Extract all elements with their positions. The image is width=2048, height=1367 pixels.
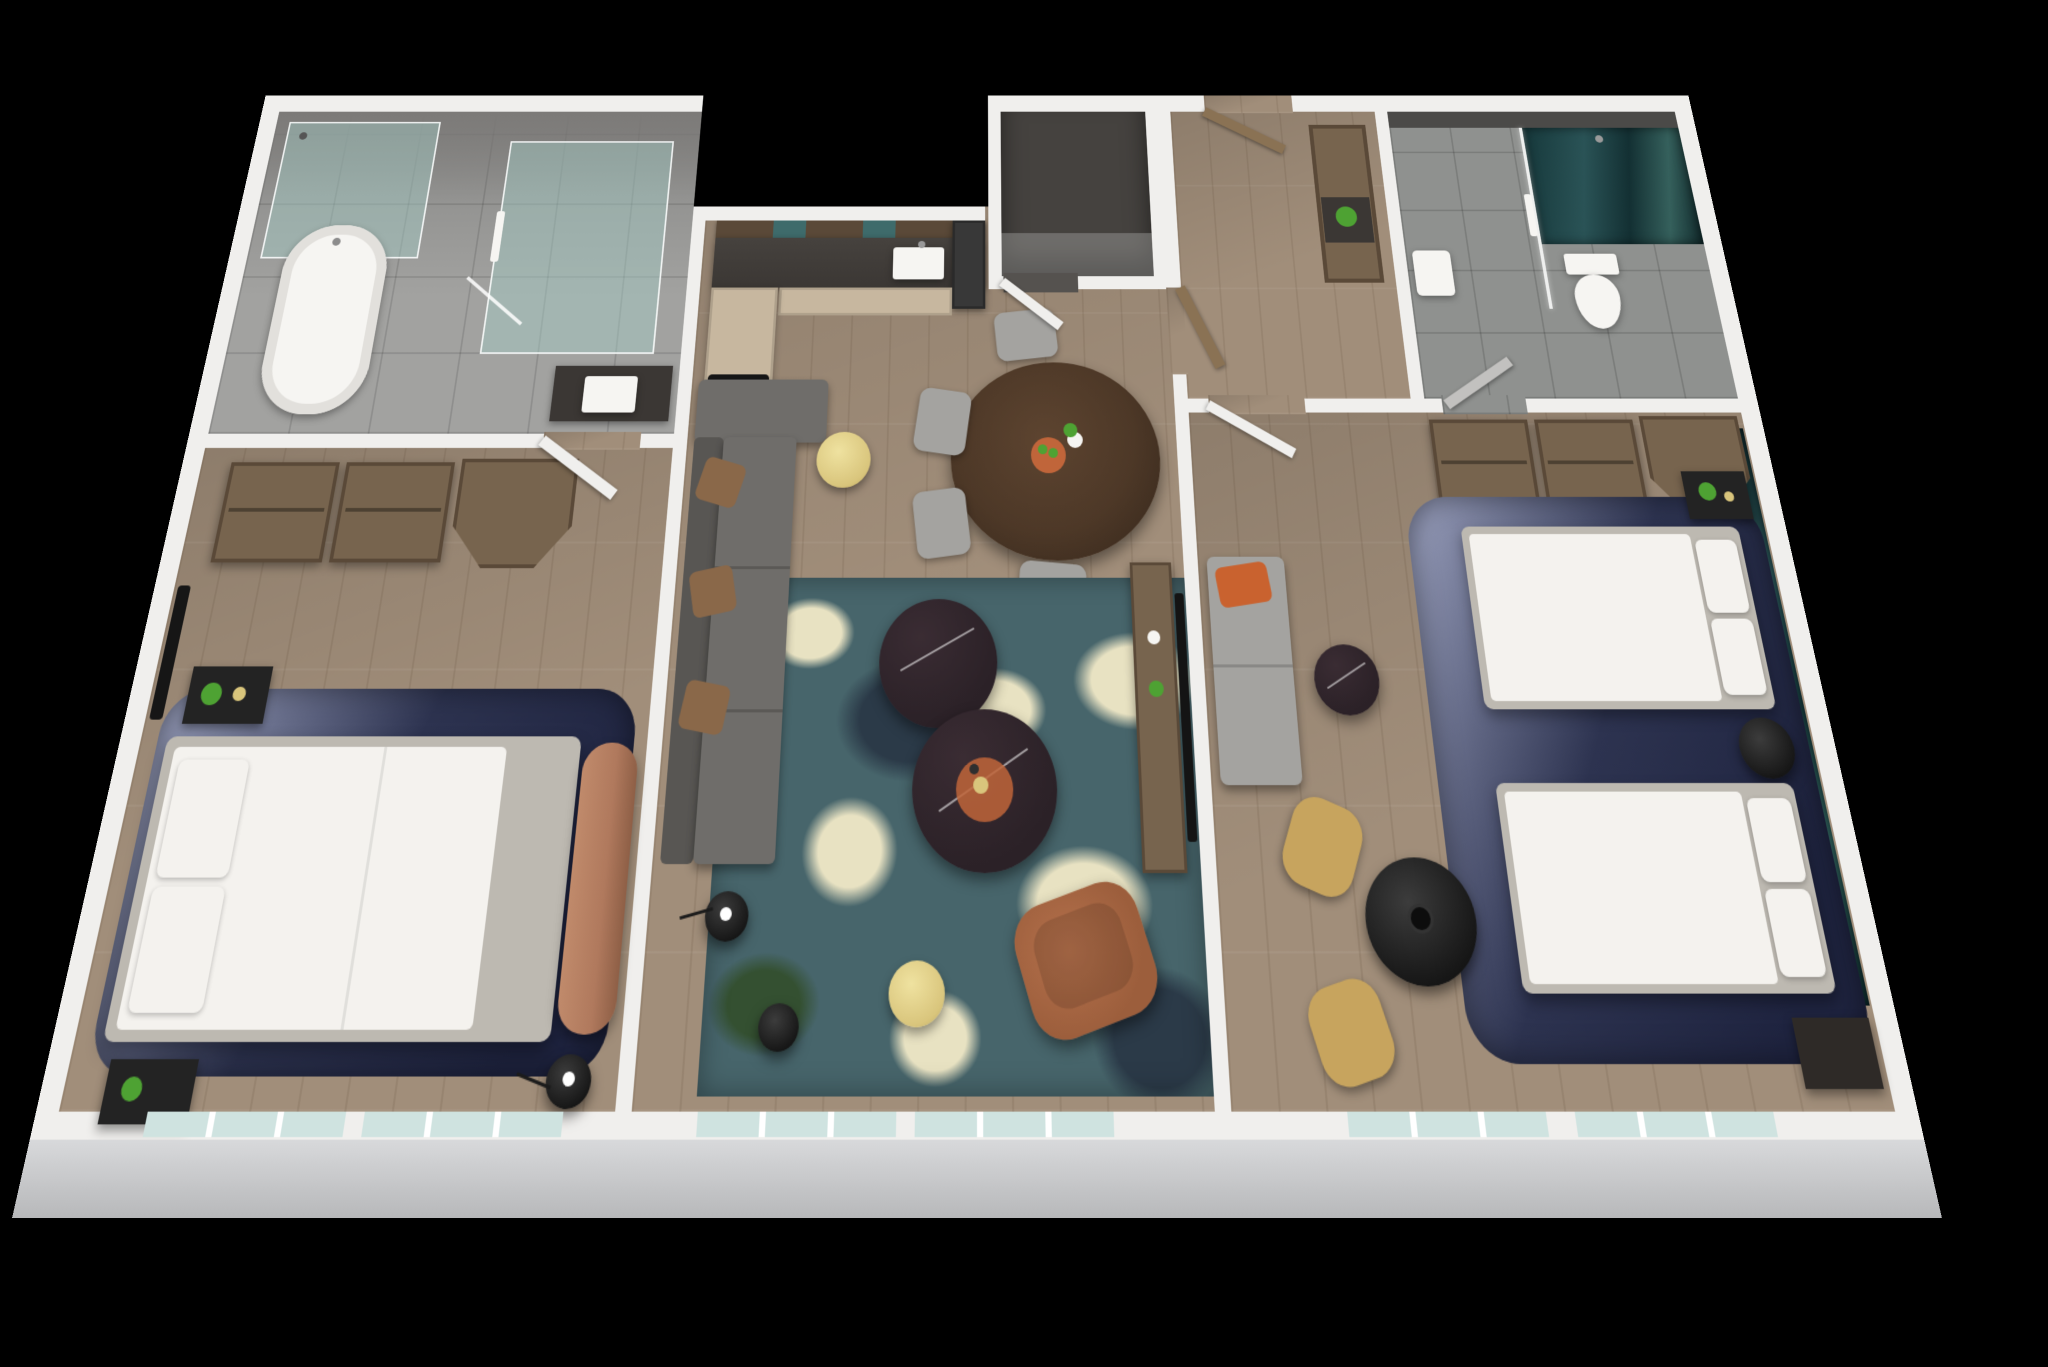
queen-bed-a-mattress xyxy=(1469,534,1723,701)
fruit-icon xyxy=(1048,448,1058,458)
bedroom-1 xyxy=(59,448,673,1112)
tray-icon xyxy=(1723,491,1735,501)
toilet-bowl xyxy=(1571,275,1626,329)
duvet-fold xyxy=(340,747,387,1030)
window xyxy=(1347,1112,1549,1137)
toilet-tank xyxy=(1563,254,1620,275)
floorplan xyxy=(12,96,1942,1218)
shower-towel xyxy=(490,211,506,262)
queen-bed-a-frame xyxy=(1460,527,1776,710)
orange-pillow xyxy=(1214,561,1274,609)
kitchen-sink xyxy=(893,247,945,279)
walk-in-shower xyxy=(480,141,674,354)
kitchen-counter xyxy=(712,238,986,288)
sofa-chaise xyxy=(694,380,829,443)
window xyxy=(915,1112,1115,1137)
window xyxy=(1575,1112,1778,1137)
kitchen-faucet-icon xyxy=(918,241,925,248)
window xyxy=(143,1112,347,1137)
vase-icon xyxy=(1147,630,1160,644)
nightstand xyxy=(1681,471,1754,519)
entry-doorway xyxy=(1204,96,1293,113)
window xyxy=(361,1112,563,1137)
bathroom-2 xyxy=(1387,112,1738,399)
vase-icon xyxy=(1410,907,1432,930)
dining-table xyxy=(950,362,1165,560)
dining-chair xyxy=(912,486,972,559)
bathroom-2-wall-face xyxy=(1387,112,1678,128)
sleeper-sofa xyxy=(1206,557,1302,785)
dining-chair xyxy=(912,387,972,457)
nightstand xyxy=(182,666,273,723)
plant-icon xyxy=(1148,681,1164,697)
shower-feature-wall xyxy=(1522,128,1704,244)
shower-glass-door xyxy=(466,276,522,325)
plant-icon xyxy=(1063,423,1077,437)
gold-side-table xyxy=(815,432,871,488)
bathroom-1 xyxy=(208,112,702,434)
exterior-wall-face xyxy=(12,1140,1942,1218)
queen-bed-b-mattress xyxy=(1504,792,1779,984)
plant-icon xyxy=(1697,482,1718,500)
window xyxy=(696,1112,896,1137)
render-canvas xyxy=(0,0,2048,1367)
wall-sink xyxy=(1412,250,1456,295)
dresser xyxy=(1792,1018,1884,1089)
plant-icon xyxy=(199,683,224,706)
kitchen-upper-cabinets xyxy=(716,221,986,238)
sofa-pillow xyxy=(688,564,737,619)
shower-head-icon xyxy=(1594,135,1603,142)
roof-void xyxy=(694,96,989,207)
king-bed-frame xyxy=(103,736,582,1042)
entry-hall xyxy=(1170,112,1410,399)
utility-closet xyxy=(988,112,1168,289)
console-niche xyxy=(1308,125,1384,283)
drink-icon xyxy=(973,777,988,794)
marble-side-table xyxy=(1311,644,1383,715)
wardrobe xyxy=(210,462,339,562)
bedroom-2 xyxy=(1189,413,1895,1112)
toilet xyxy=(1563,254,1631,332)
tray-icon xyxy=(231,687,247,701)
vanity-counter xyxy=(549,366,673,421)
king-bed-mattress xyxy=(115,747,507,1030)
angled-closet xyxy=(447,459,580,568)
fruit-icon xyxy=(1038,444,1048,454)
drink-icon xyxy=(969,764,979,775)
shower-head-icon xyxy=(298,132,307,139)
mustard-chair xyxy=(1276,789,1368,906)
refrigerator xyxy=(952,221,985,309)
wardrobe xyxy=(329,462,455,562)
plant-icon xyxy=(119,1077,145,1102)
base-cabinets xyxy=(778,288,952,316)
vanity-sink xyxy=(581,376,638,412)
queen-bed-b-frame xyxy=(1495,783,1837,994)
kitchen-north-wall xyxy=(706,207,986,221)
tub-faucet-icon xyxy=(332,238,342,246)
pillow xyxy=(127,887,226,1013)
mustard-chair xyxy=(1301,972,1403,1095)
pillow xyxy=(155,760,250,878)
closet-floor xyxy=(1001,233,1153,276)
